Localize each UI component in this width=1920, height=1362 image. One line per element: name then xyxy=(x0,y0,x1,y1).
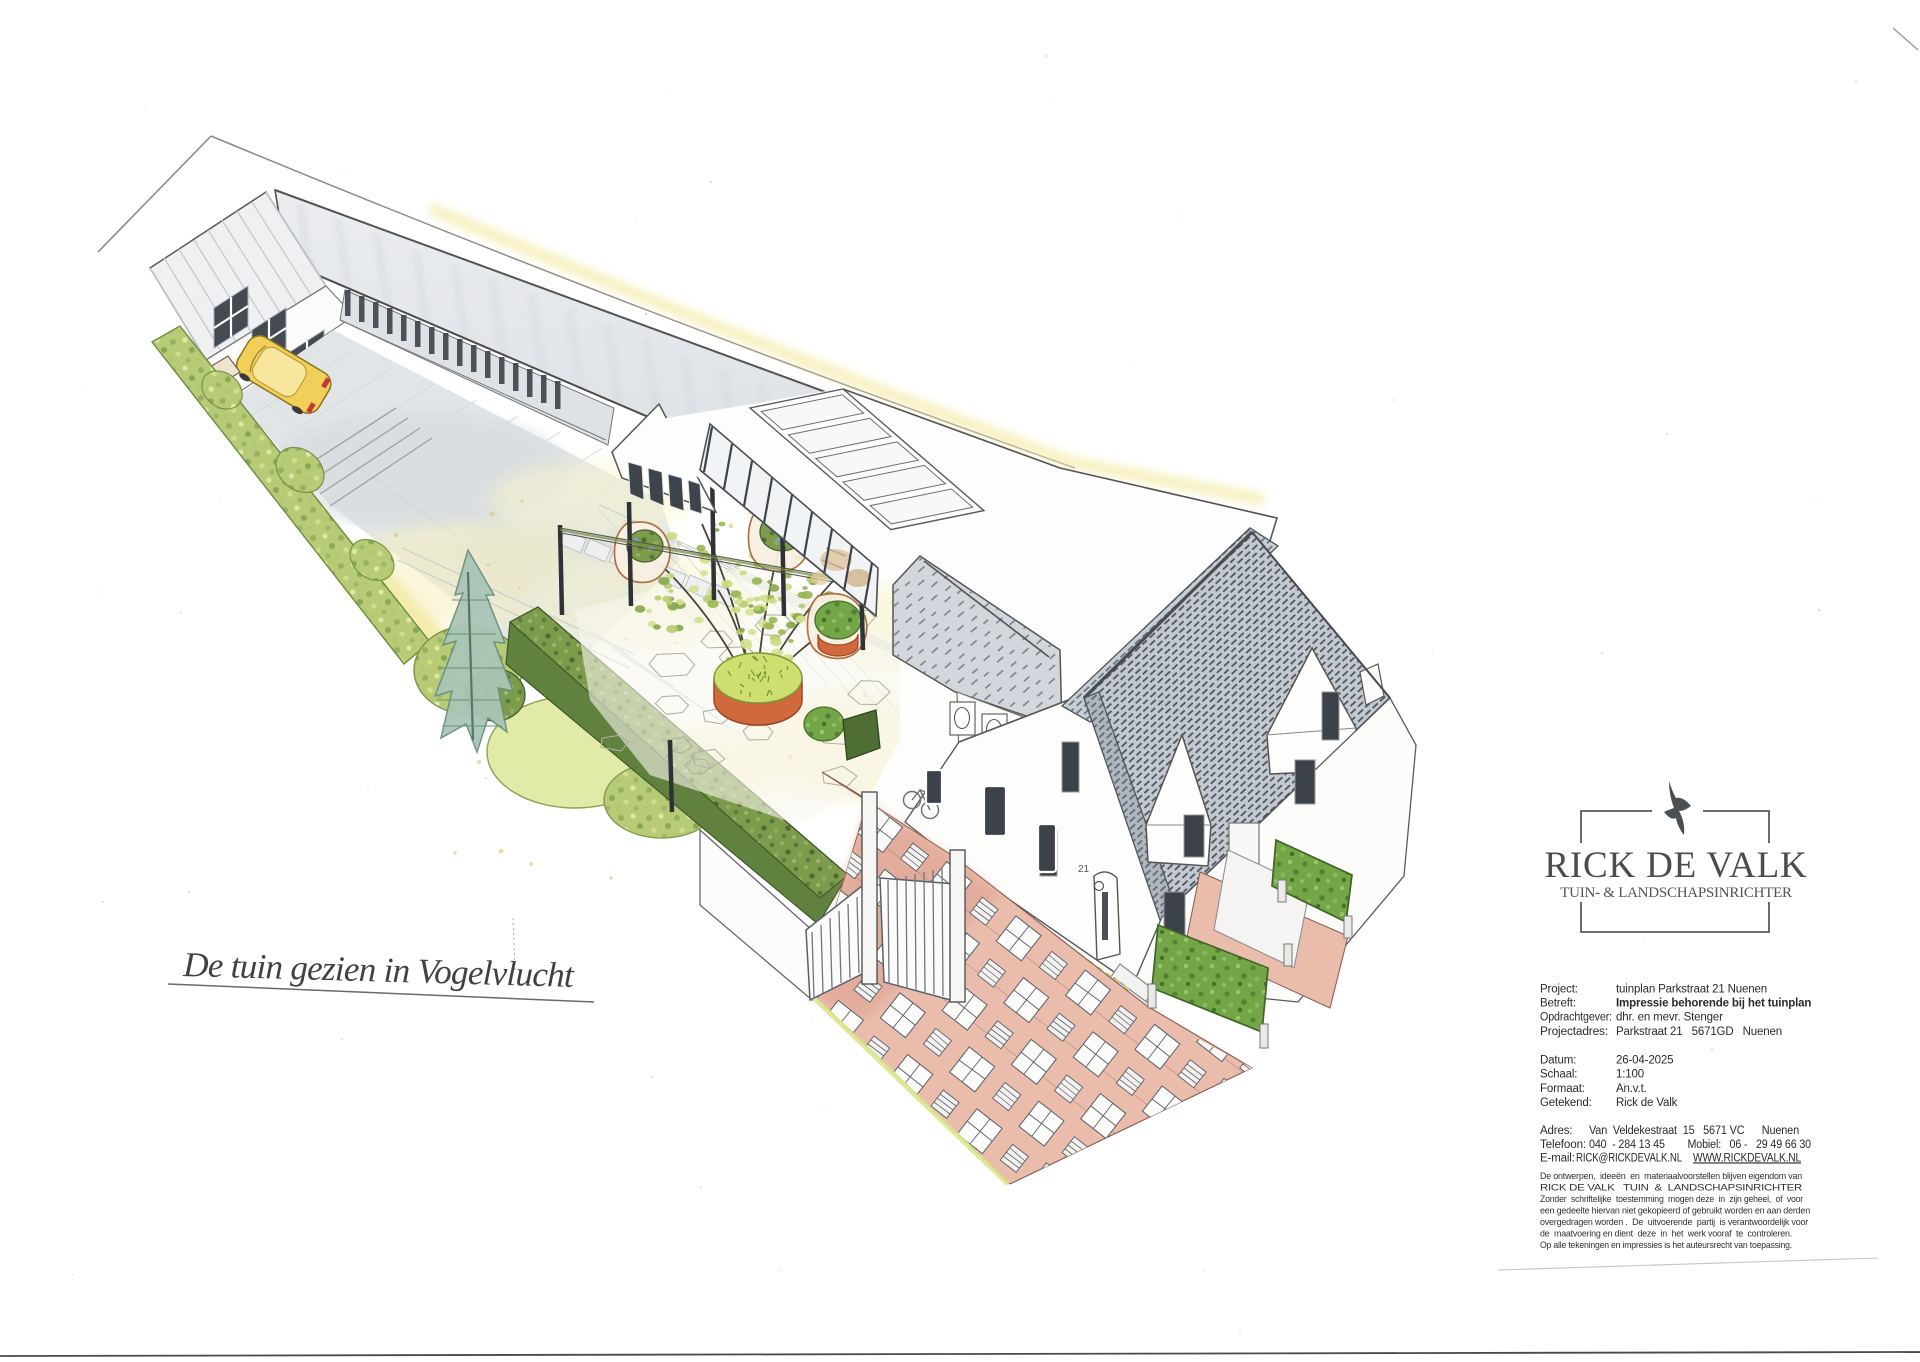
svg-text:Datum:: Datum: xyxy=(1540,1054,1576,1066)
svg-text:Adres:: Adres: xyxy=(1540,1125,1572,1137)
svg-text:dhr. en mevr. Stenger: dhr. en mevr. Stenger xyxy=(1616,1012,1723,1024)
svg-text:een gedeelte hiervan niet geko: een gedeelte hiervan niet gekopieerd of … xyxy=(1540,1206,1810,1216)
svg-text:RICK DE VALK TUIN & LANDSC: RICK DE VALK TUIN & LANDSCHAPSINRICHTER xyxy=(1540,1183,1803,1193)
svg-text:Van Veldekestraat 15 5671: Van Veldekestraat 15 5671 VC Nuenen xyxy=(1589,1125,1799,1137)
svg-text:Parkstraat 21 5671GD Nuene: Parkstraat 21 5671GD Nuenen xyxy=(1616,1026,1782,1038)
svg-text:Projectadres:: Projectadres: xyxy=(1540,1026,1608,1038)
svg-text:overgedragen worden . De uit: overgedragen worden . De uitvoerende par… xyxy=(1540,1217,1808,1227)
svg-text:Op alle tekeningen en impressi: Op alle tekeningen en impressies is het … xyxy=(1540,1240,1792,1250)
svg-text:TUIN- & LANDSCHAPSINRICHTER: TUIN- & LANDSCHAPSINRICHTER xyxy=(1560,885,1792,901)
svg-text:An.v.t.: An.v.t. xyxy=(1616,1083,1647,1095)
svg-text:Zonder schriftelijke toestem: Zonder schriftelijke toestemming mogen d… xyxy=(1540,1194,1803,1204)
svg-text:Getekend:: Getekend: xyxy=(1540,1097,1592,1109)
svg-text:E-mail:: E-mail: xyxy=(1540,1152,1575,1164)
svg-text:Telefoon:: Telefoon: xyxy=(1540,1139,1586,1151)
svg-text:Schaal:: Schaal: xyxy=(1540,1069,1577,1081)
svg-text:De ontwerpen, ideeën en mat: De ontwerpen, ideeën en materiaalvoorste… xyxy=(1540,1171,1802,1181)
svg-text:040 - 284 13 45 Mobiel: 040 - 284 13 45 Mobiel: 06 - 29 49 66 30 xyxy=(1589,1139,1811,1151)
svg-text:WWW.RICKDEVALK.NL: WWW.RICKDEVALK.NL xyxy=(1693,1152,1802,1164)
svg-text:tuinplan Parkstraat 21 Nuenen: tuinplan Parkstraat 21 Nuenen xyxy=(1616,983,1767,995)
svg-text:RICK DE VALK: RICK DE VALK xyxy=(1544,845,1807,886)
svg-text:Impressie behorende bij het tu: Impressie behorende bij het tuinplan xyxy=(1616,998,1811,1010)
svg-text:Project:: Project: xyxy=(1540,983,1578,995)
svg-text:Formaat:: Formaat: xyxy=(1540,1083,1585,1095)
svg-text:1:100: 1:100 xyxy=(1616,1069,1644,1081)
svg-text:Rick de Valk: Rick de Valk xyxy=(1616,1097,1678,1109)
svg-text:26-04-2025: 26-04-2025 xyxy=(1616,1054,1673,1066)
svg-text:Opdrachtgever:: Opdrachtgever: xyxy=(1540,1012,1612,1024)
svg-text:RICK@RICKDEVALK.NL: RICK@RICKDEVALK.NL xyxy=(1576,1152,1683,1164)
svg-text:de maatvoering en dient deze: de maatvoering en dient deze in het werk… xyxy=(1540,1229,1792,1239)
svg-text:21: 21 xyxy=(1078,864,1090,875)
svg-text:Betreft:: Betreft: xyxy=(1540,998,1576,1010)
